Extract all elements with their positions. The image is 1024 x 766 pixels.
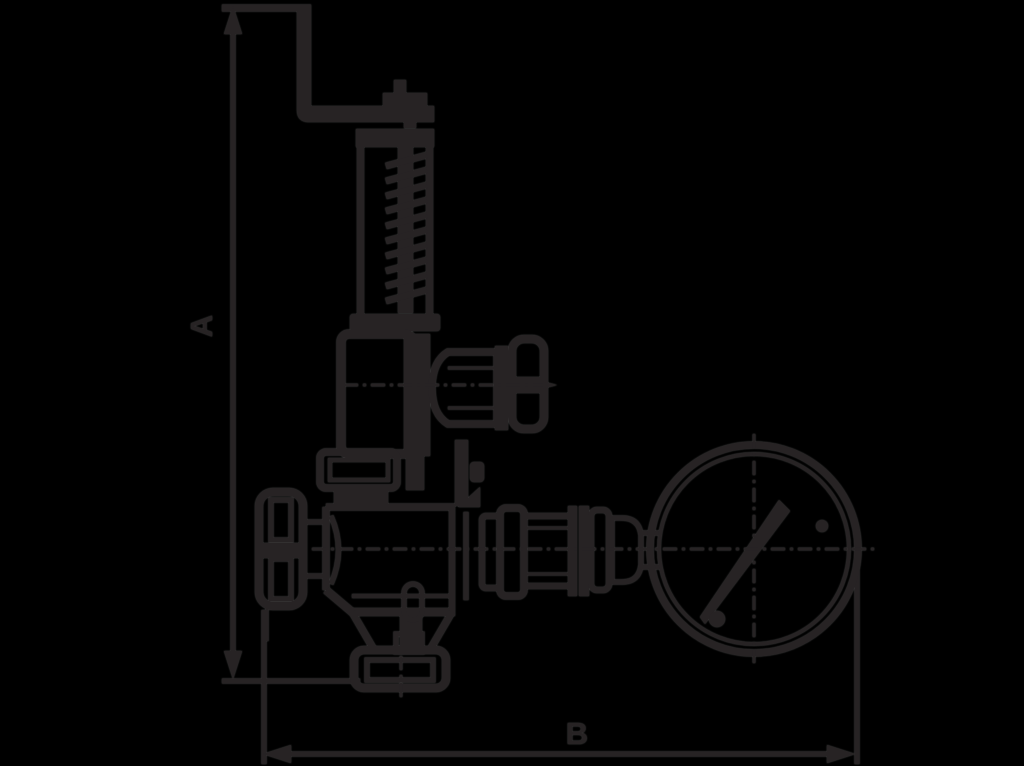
left-handwheel [259,492,326,641]
handwheel-slot-top [271,500,291,540]
dimension-b-arrow-right-icon [827,745,855,763]
dimension-b-arrow-left-icon [263,745,291,763]
gauge-needle [700,500,790,624]
union-nut-2b [579,506,589,596]
spring-housing-flange [350,314,440,331]
spindle-column-lower [406,452,424,490]
dimension-b-label: B [566,716,588,751]
gauge-piping [482,506,661,596]
union-nut-2a [568,506,577,596]
outlet-riser-boss [470,462,484,482]
handwheel-hub [263,543,300,558]
yoke-left-rod [357,147,364,317]
branch-flange [495,346,508,430]
spindle-cap [383,93,427,108]
dimension-a-arrow-down-icon [224,651,242,679]
drawing-canvas: A B [0,0,1024,766]
side-branch [344,339,557,430]
outlet-section [352,584,452,700]
lower-body [326,507,466,612]
bonnet-flange-inner [330,460,388,480]
upper-body [341,334,413,454]
spindle-column [404,334,430,456]
spring-housing [350,147,440,331]
lever-pivot-pin [404,108,416,128]
dimension-a-label: A [184,315,219,337]
gauge-dial-screw-left [709,611,725,627]
bonnet-top-flange [356,129,434,147]
branch-body [432,352,497,424]
gauge-dial-screw-right [816,520,828,532]
outlet-riser-plate [455,440,468,506]
spindle-tip [394,80,406,94]
branch-centerline-tick [543,382,557,389]
handwheel-slot-bottom [271,559,291,599]
valve-technical-drawing: A B [0,0,1024,766]
union-nut-1 [500,508,524,596]
